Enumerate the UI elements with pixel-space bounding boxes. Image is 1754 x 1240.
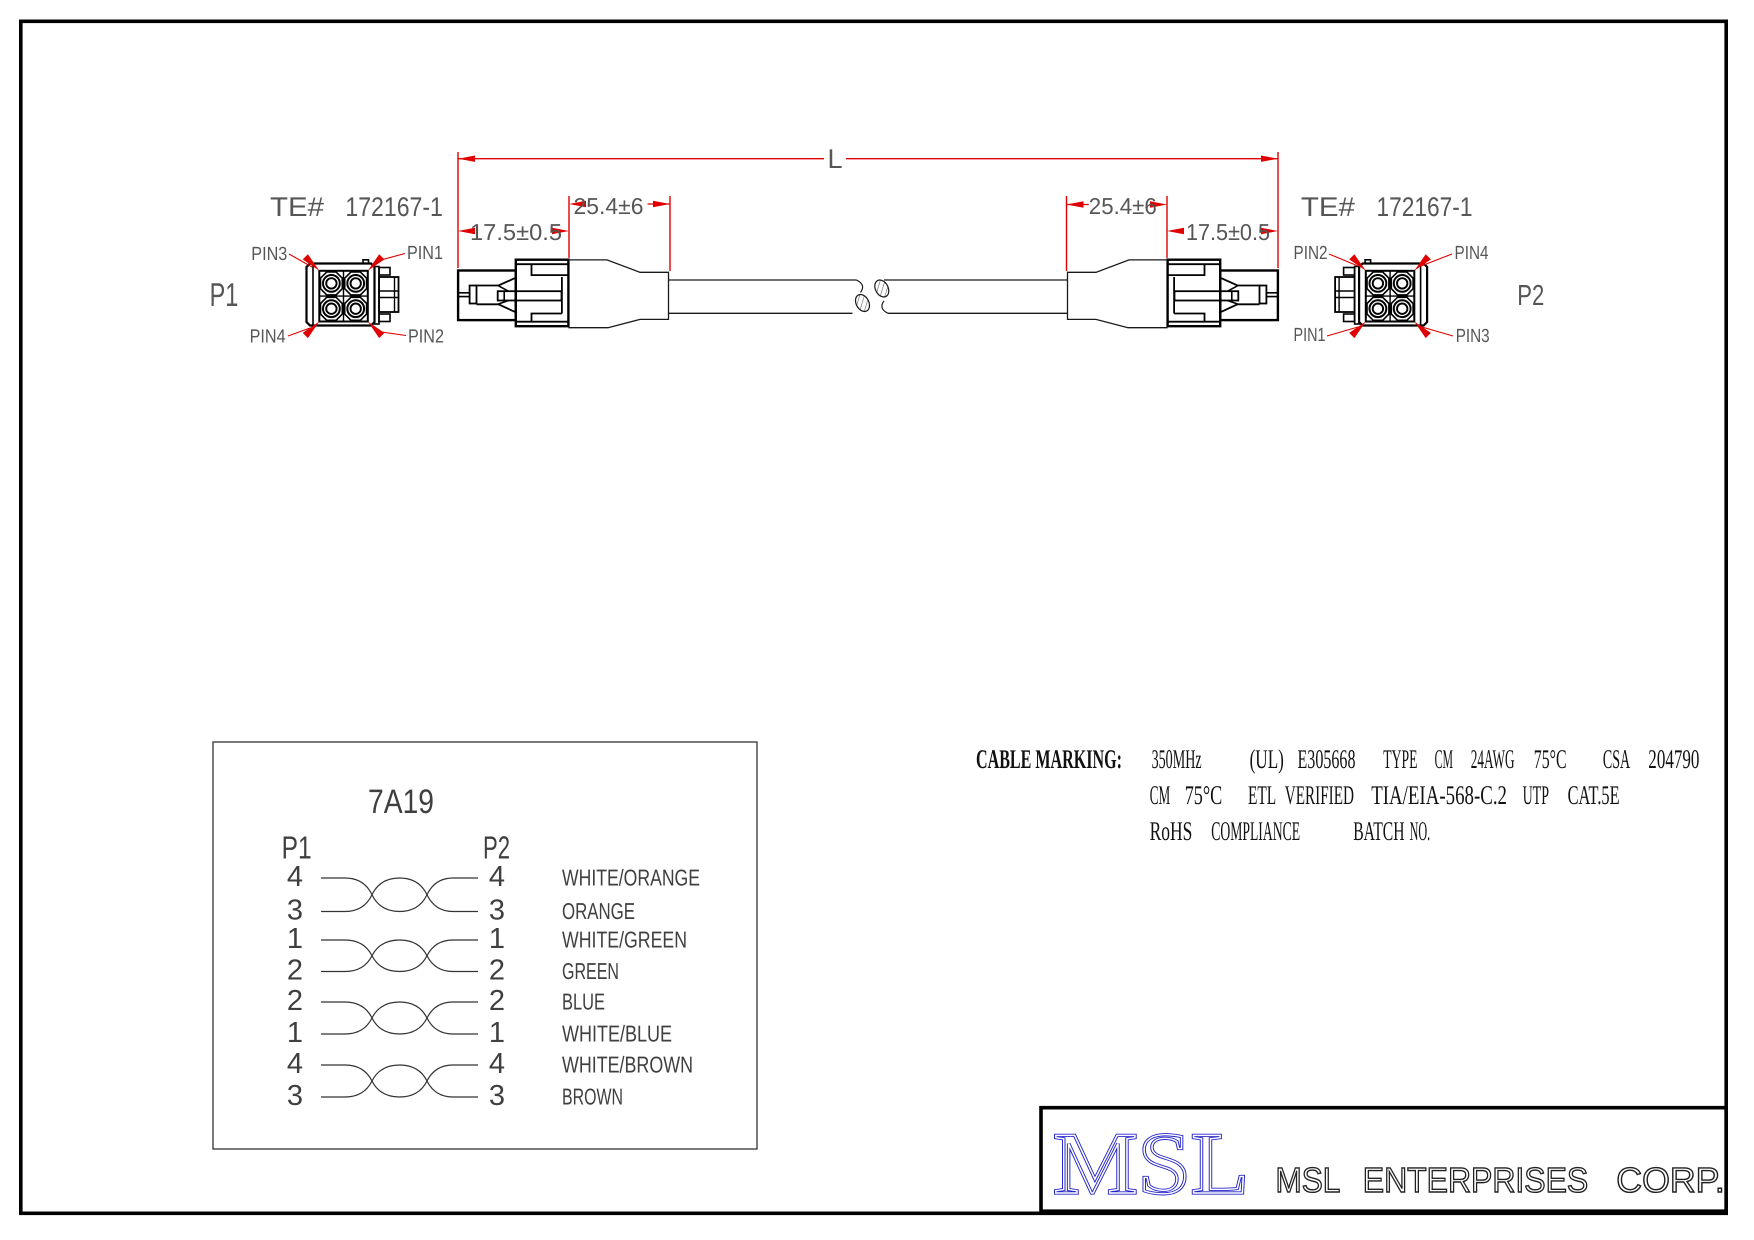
svg-text:TYPE: TYPE (1383, 744, 1417, 774)
svg-text:1: 1 (287, 923, 303, 955)
svg-text:GREEN: GREEN (562, 958, 619, 984)
svg-text:2: 2 (287, 985, 303, 1017)
svg-text:25.4±6: 25.4±6 (574, 193, 644, 219)
svg-text:2: 2 (287, 955, 303, 987)
svg-text:E305668: E305668 (1298, 744, 1356, 774)
svg-text:2: 2 (489, 985, 505, 1017)
svg-text:3: 3 (287, 895, 303, 927)
svg-text:75°C: 75°C (1534, 744, 1567, 774)
svg-text:MSL: MSL (1276, 1161, 1341, 1200)
svg-text:WHITE/ORANGE: WHITE/ORANGE (562, 865, 700, 891)
svg-text:CM: CM (1150, 780, 1171, 810)
svg-text:CAT.5E: CAT.5E (1568, 780, 1620, 810)
svg-text:PIN3: PIN3 (251, 244, 287, 265)
svg-text:TIA/EIA-568-C.2: TIA/EIA-568-C.2 (1371, 780, 1507, 810)
svg-text:RoHS: RoHS (1150, 816, 1193, 846)
svg-text:BROWN: BROWN (562, 1084, 623, 1110)
svg-text:75°C: 75°C (1185, 780, 1223, 810)
svg-text:CABLE MARKING:: CABLE MARKING: (976, 744, 1122, 774)
svg-text:CM: CM (1435, 744, 1453, 774)
svg-text:TE#: TE# (1301, 192, 1355, 222)
svg-text:MSL: MSL (1053, 1116, 1249, 1213)
svg-text:COMPLIANCE: COMPLIANCE (1211, 816, 1300, 846)
svg-text:ORANGE: ORANGE (562, 898, 635, 924)
svg-text:4: 4 (489, 861, 505, 893)
svg-text:PIN4: PIN4 (250, 326, 286, 347)
svg-text:PIN2: PIN2 (408, 326, 444, 347)
svg-text:7A19: 7A19 (368, 783, 434, 821)
svg-text:WHITE/BLUE: WHITE/BLUE (562, 1021, 672, 1047)
svg-text:TE#: TE# (270, 192, 324, 222)
svg-text:1: 1 (287, 1017, 303, 1049)
svg-text:3: 3 (287, 1080, 303, 1112)
svg-text:3: 3 (489, 895, 505, 927)
svg-text:WHITE/GREEN: WHITE/GREEN (562, 927, 687, 953)
svg-text:17.5±0.5: 17.5±0.5 (1186, 219, 1270, 245)
svg-text:1: 1 (489, 1017, 505, 1049)
svg-text:P1: P1 (210, 276, 239, 313)
svg-text:P2: P2 (1517, 280, 1544, 312)
svg-text:3: 3 (489, 1080, 505, 1112)
svg-text:2: 2 (489, 955, 505, 987)
svg-text:PIN1: PIN1 (407, 243, 443, 264)
svg-text:4: 4 (489, 1048, 505, 1080)
svg-text:L: L (827, 144, 842, 174)
svg-text:WHITE/BROWN: WHITE/BROWN (562, 1052, 693, 1078)
svg-text:4: 4 (287, 861, 303, 893)
svg-text:350MHz: 350MHz (1152, 744, 1202, 774)
svg-text:BATCH: BATCH (1353, 816, 1404, 846)
svg-text:17.5±0.5: 17.5±0.5 (470, 219, 562, 245)
svg-text:PIN2: PIN2 (1294, 243, 1328, 264)
svg-text:CORP.: CORP. (1616, 1161, 1725, 1200)
svg-text:(UL): (UL) (1250, 744, 1284, 774)
svg-text:PIN4: PIN4 (1455, 243, 1489, 264)
svg-text:172167-1: 172167-1 (345, 192, 443, 222)
svg-text:25.4±6: 25.4±6 (1089, 193, 1157, 219)
svg-text:PIN1: PIN1 (1294, 325, 1326, 346)
svg-text:ETL: ETL (1248, 780, 1276, 810)
svg-text:UTP: UTP (1523, 780, 1549, 810)
svg-text:204790: 204790 (1648, 744, 1699, 774)
svg-text:172167-1: 172167-1 (1377, 192, 1473, 222)
svg-text:ENTERPRISES: ENTERPRISES (1363, 1161, 1588, 1200)
svg-text:4: 4 (287, 1048, 303, 1080)
svg-text:BLUE: BLUE (562, 989, 605, 1015)
svg-text:CSA: CSA (1603, 744, 1631, 774)
svg-text:24AWG: 24AWG (1471, 744, 1515, 774)
svg-text:VERIFIED: VERIFIED (1285, 780, 1354, 810)
svg-text:1: 1 (489, 923, 505, 955)
svg-text:PIN3: PIN3 (1456, 326, 1490, 347)
svg-text:NO.: NO. (1410, 816, 1431, 846)
